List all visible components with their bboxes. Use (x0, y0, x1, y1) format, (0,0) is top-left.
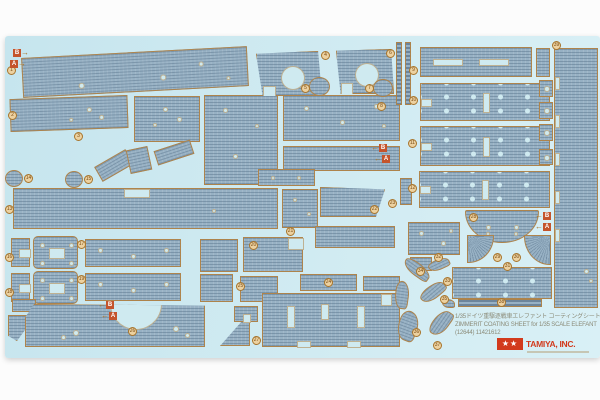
sheet-piece-plate-b (33, 271, 78, 304)
punched-hole (271, 176, 275, 180)
arrow-icon: ← (374, 155, 382, 163)
cut-notch (420, 186, 431, 194)
sheet-piece-mid-band (13, 188, 278, 229)
product-title-jp: 1/35ドイツ重駆逐戦車エレファント コーティングシートセット (455, 314, 600, 321)
punched-hole (544, 155, 550, 161)
punched-hole (164, 282, 169, 287)
marker-square: B (379, 144, 387, 152)
punched-hole (486, 225, 491, 230)
part-number-label: 10 (409, 96, 418, 105)
punched-hole (233, 154, 238, 159)
punched-hole (69, 243, 74, 248)
sheet-piece-wide-a (85, 239, 181, 267)
punched-hole (441, 241, 446, 246)
letter-marker-b: B→ (13, 49, 29, 57)
marker-square: B (543, 212, 551, 220)
punched-hole (173, 326, 179, 332)
product-code: (12644) 11421612 (455, 330, 500, 337)
cut-notch (555, 77, 560, 90)
part-number-label: 11 (408, 139, 417, 148)
sheet-piece-disc-5 (309, 77, 330, 96)
sheet-piece-bottom-band (452, 267, 552, 299)
part-number-label: 34 (416, 267, 425, 276)
punched-hole (40, 278, 45, 283)
cut-notch (124, 189, 150, 198)
punched-hole (86, 107, 91, 112)
arrow-icon: ← (535, 212, 543, 220)
cut-notch (287, 306, 295, 328)
product-photo: 1234567891011121314151617181920212223242… (0, 0, 600, 400)
cut-notch (347, 341, 361, 348)
part-number-label: 14 (24, 174, 33, 183)
sheet-piece-plate-r (408, 222, 460, 255)
sheet-piece-small-holes-bar (258, 169, 315, 186)
cut-notch (555, 153, 560, 166)
punched-hole (69, 278, 74, 283)
letter-marker-b: ←B (98, 301, 114, 309)
sheet-piece-mid-sm-1 (200, 239, 238, 272)
punched-hole (340, 120, 345, 125)
cut-notch (19, 249, 31, 258)
punched-hole (177, 117, 182, 122)
punched-hole (589, 279, 593, 283)
marker-square: A (109, 312, 117, 320)
letter-marker-b: ←B (371, 144, 387, 152)
punched-hole (160, 74, 166, 80)
cut-notch (381, 294, 392, 306)
sheet-piece-vert-holes (282, 189, 318, 228)
tamiya-star-flag-icon: ★★ (497, 338, 523, 350)
letter-marker-b: ←B (535, 212, 551, 220)
sheet-piece-disc-14 (5, 170, 23, 187)
cut-notch (555, 191, 560, 204)
cut-notch (482, 180, 489, 200)
sheet-piece-band-2 (9, 95, 128, 132)
part-number-label: 37 (433, 341, 442, 350)
part-number-label: 31 (503, 262, 512, 271)
sheet-piece-low-sm-1 (200, 274, 233, 302)
part-number-label: 26 (128, 327, 137, 336)
part-number-label: 9 (409, 66, 418, 75)
sheet-piece-eyelet-sq-4 (539, 149, 553, 165)
marker-square: A (543, 223, 551, 231)
part-number-label: 33 (443, 277, 452, 286)
punched-hole (69, 261, 74, 266)
part-number-label: 6 (386, 49, 395, 58)
part-number-label: 24 (324, 278, 333, 287)
cut-notch (297, 341, 311, 348)
punched-hole (212, 209, 216, 213)
sheet-piece-tall-right (554, 48, 598, 308)
part-number-label: 39 (552, 41, 561, 50)
logo-subtext-bar (527, 351, 589, 353)
punched-hole (73, 330, 79, 336)
sheet-piece-strip-1 (396, 42, 402, 105)
part-number-label: 27 (252, 336, 261, 345)
part-number-label: 18 (5, 288, 14, 297)
punched-hole (198, 61, 203, 66)
part-number-label: 13 (5, 205, 14, 214)
sheet-piece-slot-bar (420, 47, 532, 77)
sheet-piece-disc-7 (373, 79, 393, 97)
punched-hole (185, 333, 190, 338)
cut-notch (49, 248, 65, 259)
punched-hole (164, 248, 169, 253)
cut-notch (483, 93, 490, 113)
cut-notch (243, 314, 251, 323)
part-number-label: 7 (365, 84, 374, 93)
letter-marker-a: ←A (535, 223, 551, 231)
part-number-label: 5 (301, 84, 310, 93)
punched-hole (99, 114, 104, 119)
sheet-piece-skirt-1 (420, 83, 550, 121)
cut-notch (49, 283, 65, 294)
punched-hole (293, 198, 297, 202)
cut-notch (357, 306, 365, 328)
part-number-label: 35 (440, 295, 449, 304)
sheet-piece-big-slot (262, 293, 400, 347)
punched-hole (544, 108, 550, 114)
cut-notch (555, 115, 560, 128)
part-number-label: 21 (286, 227, 295, 236)
punched-hole (131, 254, 136, 259)
part-number-label: 16 (5, 253, 14, 262)
part-number-label: 38 (497, 298, 506, 307)
part-number-label: 17 (77, 240, 86, 249)
part-number-label: 36 (412, 328, 421, 337)
punched-hole (255, 124, 259, 128)
sheet-piece-bar-end (536, 48, 550, 77)
sheet-piece-wide-b (85, 273, 181, 301)
sheet-piece-skirt-2 (420, 126, 550, 166)
part-number-label: 22 (370, 205, 379, 214)
marker-square: A (382, 155, 390, 163)
part-number-label: 2 (8, 111, 17, 120)
punched-hole (40, 296, 45, 301)
punched-hole (98, 248, 103, 253)
cut-notch (19, 284, 31, 293)
punched-hole (40, 243, 45, 248)
punched-hole (69, 296, 74, 301)
tamiya-logo-text: TAMIYA, INC. (526, 338, 575, 350)
letter-marker-a: ←A (374, 155, 390, 163)
tamiya-logo: ★★TAMIYA, INC. (497, 338, 575, 350)
punched-hole (304, 106, 309, 111)
sheet-piece-disc-15 (65, 171, 83, 188)
arrow-icon: ← (535, 223, 543, 231)
sheet-piece-eyelet-sq-1 (539, 80, 553, 97)
cut-notch (421, 99, 432, 107)
arrow-icon: → (18, 60, 26, 68)
part-number-label: 8 (377, 102, 386, 111)
punched-hole (98, 282, 103, 287)
cut-notch (421, 143, 432, 151)
product-title-en: ZIMMERIT COATING SHEET for 1/35 SCALE EL… (455, 322, 597, 329)
part-number-label: 3 (74, 132, 83, 141)
cut-notch (433, 59, 463, 66)
marker-square: B (106, 301, 114, 309)
sheet-piece-bottom-left-big (25, 304, 205, 347)
punched-hole (226, 76, 230, 80)
punched-hole (297, 176, 301, 180)
part-number-label: 29 (493, 253, 502, 262)
sheet-piece-tri-notch (234, 306, 258, 322)
part-number-label: 4 (321, 51, 330, 60)
sheet-piece-sliver-2 (126, 146, 153, 174)
letter-marker-a: A→ (10, 60, 26, 68)
arrow-icon: ← (101, 312, 109, 320)
cut-notch (321, 304, 329, 320)
sheet-piece-eyelet-sq-2 (539, 102, 553, 119)
cut-notch (288, 238, 304, 250)
punched-hole (544, 130, 550, 136)
part-number-label: 30 (512, 253, 521, 262)
marker-square: A (10, 60, 18, 68)
sheet-piece-eyelet-sq-3 (539, 124, 553, 141)
part-number-label: 28 (469, 213, 478, 222)
punched-hole (514, 225, 519, 230)
arrow-icon: → (21, 49, 29, 57)
sheet-piece-plate-a (33, 236, 78, 269)
arrow-icon: ← (371, 144, 379, 152)
part-number-label: 20 (249, 241, 258, 250)
punched-hole (307, 212, 311, 216)
punched-hole (449, 229, 453, 233)
punched-hole (514, 232, 518, 236)
sheet-piece-bracket-b (11, 273, 30, 302)
punched-hole (163, 107, 168, 112)
part-number-label: 12 (408, 184, 417, 193)
part-number-label: 19 (77, 275, 86, 284)
part-number-label: 25 (236, 282, 245, 291)
sheet-piece-bracket-a (11, 238, 30, 267)
cut-notch (555, 229, 560, 242)
part-number-label: 32 (434, 253, 443, 262)
part-number-label: 15 (84, 175, 93, 184)
punched-hole (382, 124, 386, 128)
punched-hole (131, 288, 136, 293)
punched-hole (78, 83, 84, 89)
cut-notch (479, 59, 509, 66)
punched-hole (223, 108, 228, 113)
cut-notch (483, 137, 490, 157)
marker-square: B (13, 49, 21, 57)
punched-hole (40, 261, 45, 266)
sheet-piece-short-wide (315, 226, 395, 248)
part-number-label: 23 (388, 199, 397, 208)
sheet-piece-skirt-3 (419, 171, 550, 208)
letter-marker-a: ←A (101, 312, 117, 320)
sheet-piece-band-3 (134, 96, 200, 142)
punched-hole (153, 123, 157, 127)
arrow-icon: ← (98, 301, 106, 309)
punched-hole (544, 86, 550, 92)
sheet-piece-low-sm-3 (363, 276, 400, 291)
punched-hole (61, 335, 66, 340)
punched-hole (419, 231, 424, 236)
punched-hole (69, 118, 73, 122)
punched-hole (584, 269, 589, 274)
